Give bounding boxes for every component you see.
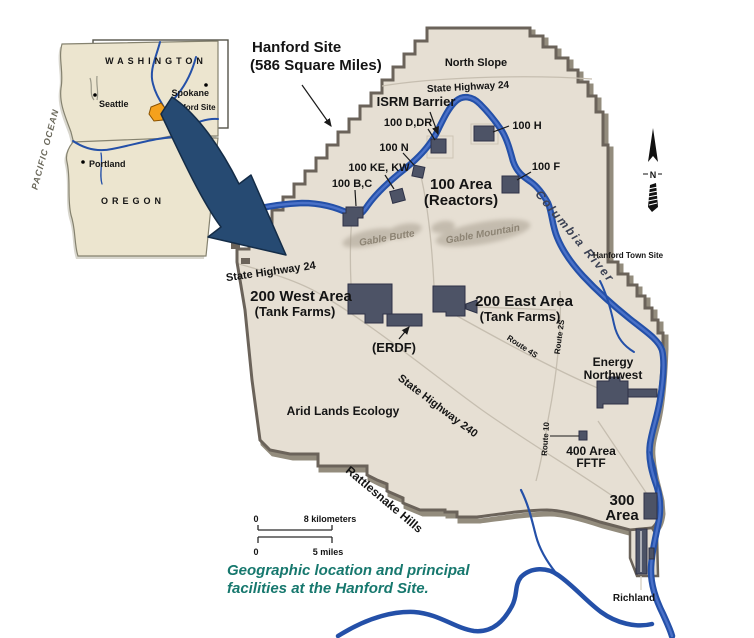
- label-100-area: 100 Area: [430, 176, 493, 193]
- callout-line1: Hanford Site: [252, 39, 341, 56]
- portland-dot: [81, 160, 85, 164]
- map-canvas: WASHINGTON OREGON PACIFIC OCEAN Seattle …: [0, 0, 754, 638]
- label-100-h: 100 H: [512, 120, 541, 132]
- building-richland-annex: [649, 548, 654, 559]
- label-100-f: 100 F: [532, 161, 560, 173]
- caption-line1: Geographic location and principal: [227, 562, 470, 579]
- building-400-area: [579, 431, 587, 440]
- scale-bar-miles: [258, 537, 332, 543]
- label-200-east: 200 East Area: [475, 293, 574, 310]
- building-energy-northwest-bar: [628, 389, 657, 397]
- portland-label: Portland: [89, 159, 126, 169]
- oregon-label: OREGON: [101, 196, 165, 206]
- building-100-d-dr: [431, 139, 446, 153]
- label-200-west-sub: (Tank Farms): [255, 304, 336, 319]
- building-100-n: [412, 165, 425, 178]
- hanford-town-site-label: Hanford Town Site: [593, 251, 664, 260]
- north-slope-label: North Slope: [445, 57, 507, 69]
- north-label: N: [650, 170, 657, 180]
- seattle-label: Seattle: [99, 99, 129, 109]
- scale-zero-km: 0: [253, 514, 258, 524]
- main-map: [228, 28, 672, 636]
- energy-northwest-label2: Northwest: [584, 368, 643, 382]
- label-100-ke-kw: 100 KE, KW: [348, 162, 410, 174]
- energy-northwest-label1: Energy: [593, 355, 634, 369]
- building-erdf: [387, 314, 422, 326]
- building-100-h: [474, 126, 494, 141]
- label-400-area-sub: FFTF: [576, 456, 605, 470]
- callout-line2: (586 Square Miles): [250, 57, 382, 74]
- hanford-site-map-figure: WASHINGTON OREGON PACIFIC OCEAN Seattle …: [0, 0, 754, 638]
- building-200-east: [433, 286, 465, 316]
- label-200-east-sub: (Tank Farms): [480, 309, 561, 324]
- north-arrow-spike: [648, 128, 658, 162]
- building-300-area: [644, 493, 657, 519]
- scale-miles-label: 5 miles: [313, 547, 344, 557]
- scale-zero-miles: 0: [253, 547, 258, 557]
- callout-arrow: [302, 85, 331, 126]
- building-100-ke-kw: [390, 188, 406, 203]
- label-100-n: 100 N: [379, 142, 408, 154]
- label-100-d-dr: 100 D,DR: [384, 117, 432, 129]
- washington-label: WASHINGTON: [105, 56, 207, 66]
- spokane-dot: [204, 83, 208, 87]
- boundary-fragment: [241, 258, 250, 264]
- north-arrow: N: [643, 128, 662, 212]
- label-200-west: 200 West Area: [250, 288, 352, 305]
- arid-lands-label: Arid Lands Ecology: [287, 404, 400, 418]
- figure-caption: Geographic location and principal facili…: [227, 562, 470, 597]
- pacific-ocean-label: PACIFIC OCEAN: [29, 108, 60, 191]
- isrm-barrier-label: ISRM Barrier: [377, 94, 456, 109]
- scale-bar: 0 8 kilometers 0 5 miles: [253, 514, 356, 557]
- scale-bar-km: [258, 525, 332, 530]
- richland-label: Richland: [613, 593, 655, 604]
- spokane-label: Spokane: [171, 88, 209, 98]
- scale-km-label: 8 kilometers: [304, 514, 357, 524]
- caption-line2: facilities at the Hanford Site.: [227, 580, 429, 597]
- label-100-area-sub: (Reactors): [424, 192, 498, 209]
- label-300-sub: Area: [605, 507, 639, 524]
- seattle-dot: [93, 93, 97, 97]
- erdf-label: (ERDF): [372, 340, 416, 355]
- building-100-f: [502, 176, 519, 193]
- label-100-bc: 100 B,C: [332, 178, 372, 190]
